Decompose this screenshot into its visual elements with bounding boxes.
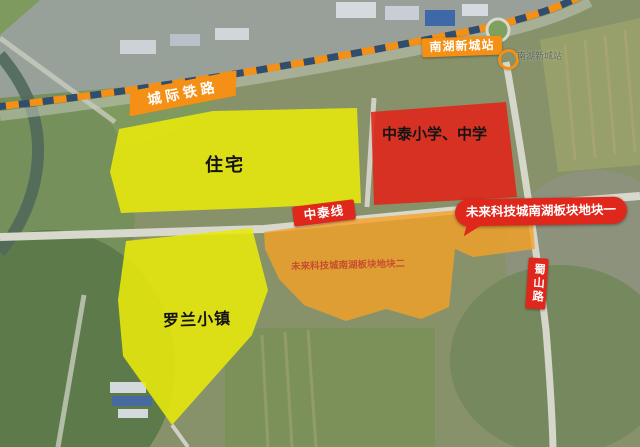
station-basemap-label: 南湖新城站 [517,49,562,62]
shushan-road-badge: 蜀山路 [525,257,548,309]
region-label-school: 中泰小学、中学 [382,123,487,144]
plot1-callout: 未来科技城南湖板块地块一 [455,197,627,227]
station-marker-ring [498,49,519,70]
station-badge: 南湖新城站 [422,36,503,58]
region-school-shape [371,102,517,205]
region-label-roland: 罗兰小镇 [163,305,232,331]
region-label-plot2: 未来科技城南湖板块地块二 [291,256,405,273]
field-patch [225,328,435,447]
plot1-callout-label: 未来科技城南湖板块地块一 [466,203,616,220]
region-label-residential: 住宅 [205,151,245,177]
satellite-map: 住宅 中泰小学、中学 罗兰小镇 未来科技城南湖板块地块二 城际铁路 南湖新城站 … [0,0,640,447]
